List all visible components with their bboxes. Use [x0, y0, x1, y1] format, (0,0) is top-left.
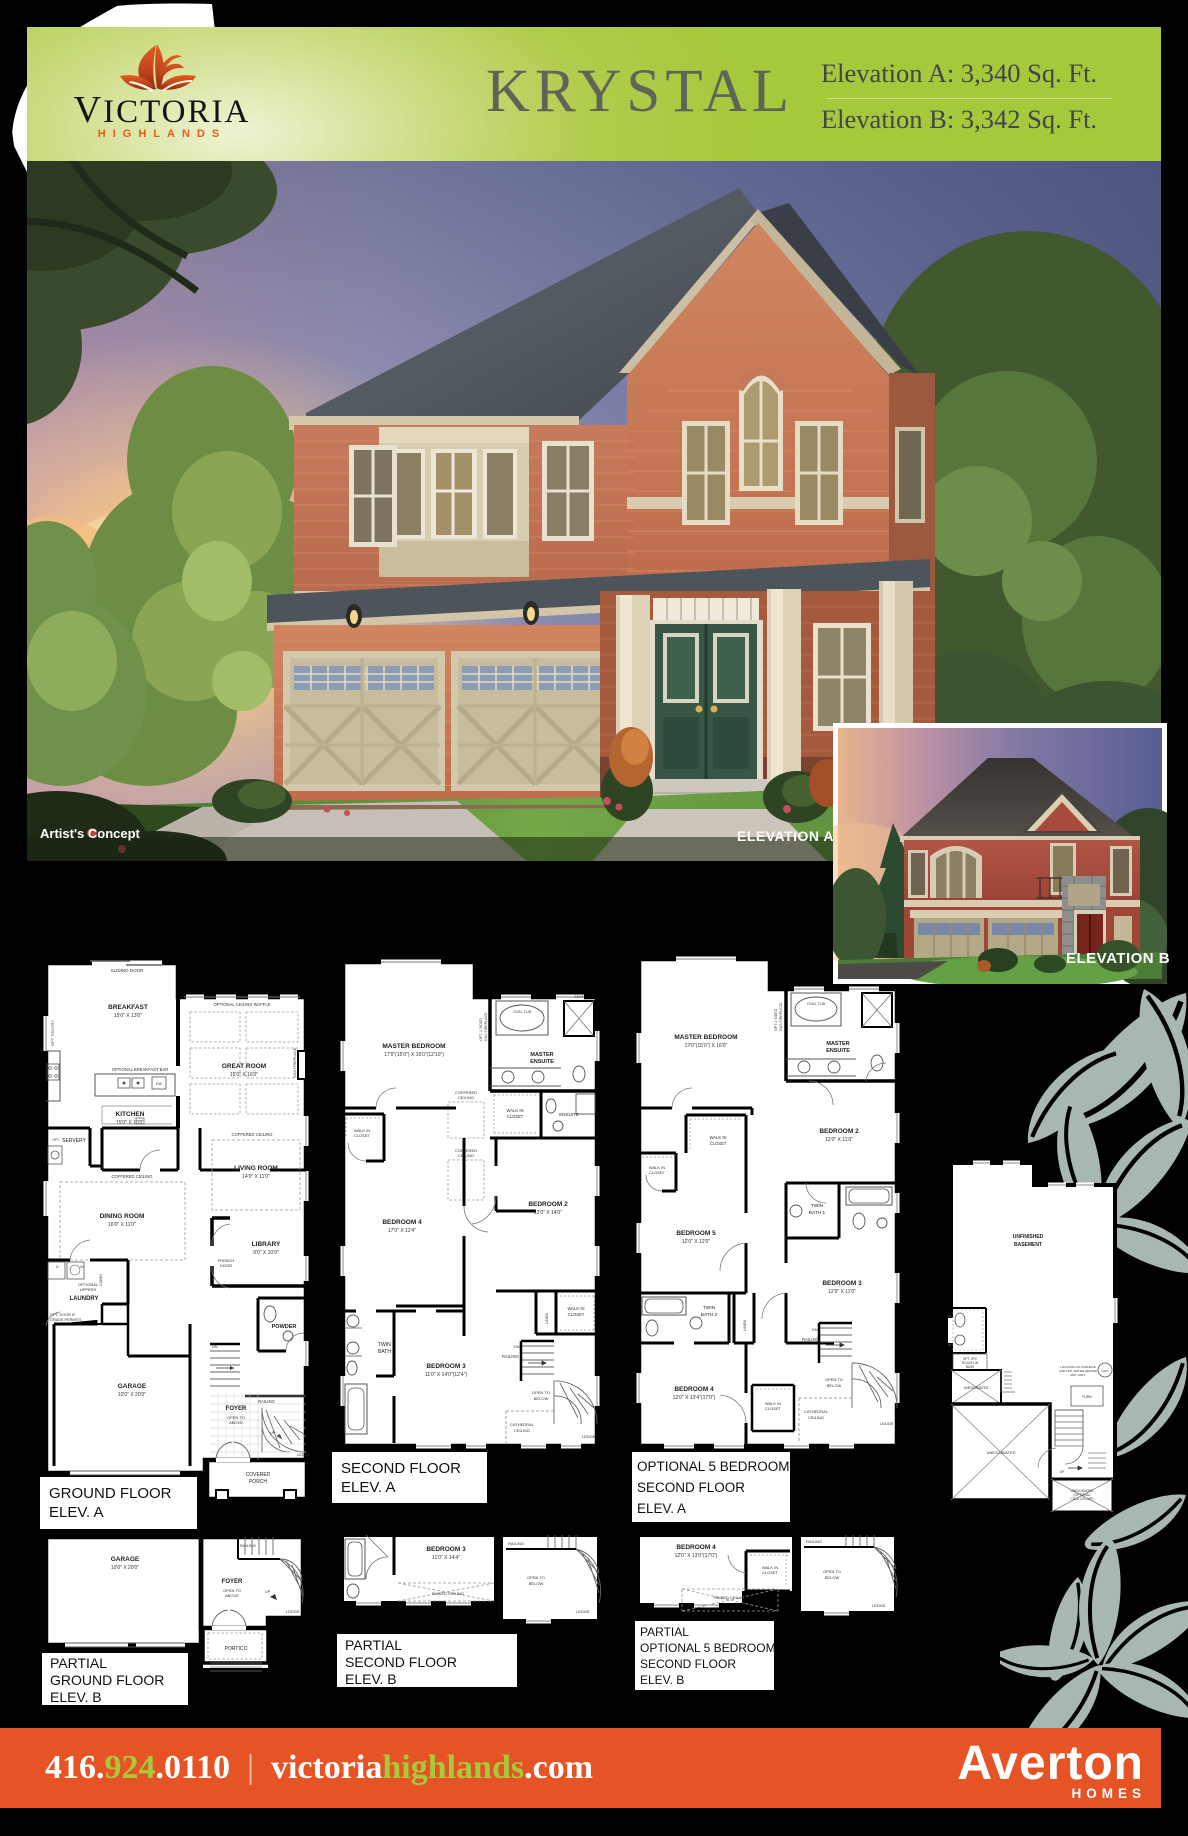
svg-text:SLIDING DOOR: SLIDING DOOR: [111, 968, 145, 973]
svg-text:LEDGE: LEDGE: [582, 1434, 596, 1439]
svg-text:RAISED CEILING: RAISED CEILING: [714, 1595, 746, 1600]
svg-text:OPT. 2 SIDED: OPT. 2 SIDED: [479, 1018, 483, 1041]
svg-text:D: D: [56, 1265, 59, 1269]
svg-text:SERVERY: SERVERY: [62, 1138, 86, 1144]
svg-text:12'0" X 12'0": 12'0" X 12'0": [682, 1239, 710, 1245]
svg-text:12'0" X 11'0": 12'0" X 11'0": [828, 1289, 856, 1295]
svg-text:UP: UP: [265, 1590, 271, 1594]
svg-text:POWDER: POWDER: [272, 1324, 297, 1330]
svg-text:9'0" X 10'0": 9'0" X 10'0": [253, 1250, 279, 1256]
svg-text:CEILING: CEILING: [808, 1415, 824, 1420]
svg-text:17'0"(15'0") X 16'0"(12'10"): 17'0"(15'0") X 16'0"(12'10"): [384, 1052, 444, 1058]
svg-text:10'0" X 20'0": 10'0" X 20'0": [111, 1565, 139, 1571]
svg-text:GARAGE: GARAGE: [118, 1383, 147, 1390]
svg-text:OPTIONAL BREAKFAST BAR: OPTIONAL BREAKFAST BAR: [112, 1067, 169, 1072]
svg-text:DINING ROOM: DINING ROOM: [100, 1213, 145, 1220]
svg-text:MASTER: MASTER: [530, 1052, 553, 1058]
svg-text:11'0" X 14'0"(12'4"): 11'0" X 14'0"(12'4"): [425, 1372, 468, 1378]
svg-text:12'0" X 11'0": 12'0" X 11'0": [825, 1137, 853, 1143]
svg-text:UNFINISHED: UNFINISHED: [1013, 1234, 1044, 1240]
svg-text:OPT 2 SIDED: OPT 2 SIDED: [774, 1008, 778, 1031]
svg-text:MAY VARY: MAY VARY: [1071, 1373, 1086, 1377]
svg-text:CLOSET: CLOSET: [765, 1406, 782, 1411]
svg-text:CLOSET: CLOSET: [762, 1570, 779, 1575]
svg-text:LEDGE: LEDGE: [576, 1609, 590, 1614]
svg-text:ABOVE: ABOVE: [229, 1420, 243, 1425]
svg-text:MASTER BEDROOM: MASTER BEDROOM: [382, 1043, 445, 1050]
svg-text:UP: UP: [270, 1431, 276, 1435]
svg-text:CEILING: CEILING: [458, 1095, 474, 1100]
svg-text:15'0" X 16'0": 15'0" X 16'0": [230, 1072, 258, 1078]
svg-text:MASTER: MASTER: [826, 1041, 849, 1047]
svg-text:ENSUITE: ENSUITE: [530, 1059, 554, 1065]
svg-text:CLOSET: CLOSET: [568, 1312, 585, 1317]
svg-text:LINEN: LINEN: [743, 1320, 747, 1331]
svg-text:BATH 1: BATH 1: [809, 1210, 826, 1216]
svg-text:GARAGE: GARAGE: [111, 1556, 140, 1563]
svg-text:DN: DN: [212, 1345, 218, 1349]
svg-text:OPT. PANTRY: OPT. PANTRY: [50, 1020, 55, 1046]
svg-text:15'0" X 13'0": 15'0" X 13'0": [114, 1013, 142, 1019]
svg-text:OPEN TO: OPEN TO: [825, 1377, 843, 1382]
svg-text:CUBBY: CUBBY: [99, 1273, 103, 1286]
svg-text:LAUNDRY: LAUNDRY: [69, 1296, 98, 1302]
svg-text:OVAL TUB: OVAL TUB: [513, 1010, 532, 1014]
svg-text:SEAT: SEAT: [574, 995, 584, 999]
svg-text:FOYER: FOYER: [222, 1579, 243, 1585]
svg-text:RAILING: RAILING: [240, 1543, 256, 1548]
svg-text:BREAKFAST: BREAKFAST: [108, 1004, 148, 1011]
svg-text:15'0" X 10'0": 15'0" X 10'0": [116, 1120, 144, 1126]
svg-text:DOOR: DOOR: [220, 1263, 232, 1268]
svg-text:COFFERED CEILING: COFFERED CEILING: [232, 1132, 273, 1137]
svg-text:RAILING: RAILING: [258, 1399, 275, 1404]
svg-text:BELOW: BELOW: [827, 1383, 842, 1388]
svg-text:OPT.: OPT.: [52, 1138, 60, 1142]
svg-text:CLOSET: CLOSET: [649, 1170, 666, 1175]
svg-text:BELOW: BELOW: [529, 1581, 544, 1586]
svg-text:ABOVE: ABOVE: [225, 1593, 239, 1598]
svg-text:COLD CELLAR): COLD CELLAR): [1070, 1497, 1093, 1501]
svg-text:LEDGE: LEDGE: [880, 1421, 894, 1426]
svg-text:TWIN: TWIN: [378, 1342, 391, 1348]
svg-text:CLOSET: CLOSET: [354, 1133, 371, 1138]
svg-text:OPEN TO: OPEN TO: [532, 1390, 550, 1395]
svg-text:PORTICO: PORTICO: [225, 1646, 248, 1652]
svg-text:OPEN TO: OPEN TO: [527, 1575, 545, 1580]
svg-text:DN: DN: [812, 1328, 818, 1332]
svg-text:UPPERS: UPPERS: [80, 1287, 97, 1292]
svg-text:LINEN: LINEN: [545, 1313, 549, 1324]
svg-text:TWIN: TWIN: [811, 1203, 824, 1209]
svg-text:FURN: FURN: [1082, 1395, 1092, 1399]
svg-text:CLOSET: CLOSET: [507, 1114, 524, 1119]
svg-text:CEILING: CEILING: [458, 1153, 474, 1158]
svg-text:16'0" X 11'0": 16'0" X 11'0": [108, 1222, 136, 1228]
svg-text:DN: DN: [514, 1345, 520, 1349]
svg-text:UNEXCAVATED: UNEXCAVATED: [964, 1386, 989, 1390]
svg-text:17'0" X 12'4": 17'0" X 12'4": [388, 1228, 416, 1234]
svg-text:RAILING: RAILING: [502, 1354, 519, 1359]
svg-text:DW: DW: [156, 1082, 163, 1086]
svg-text:BEDROOM 3: BEDROOM 3: [822, 1280, 862, 1287]
svg-text:GAS FIREPLACE: GAS FIREPLACE: [293, 1047, 297, 1078]
svg-text:GAS FIREPLACE: GAS FIREPLACE: [484, 1012, 488, 1041]
svg-text:BEDROOM 4: BEDROOM 4: [674, 1386, 714, 1393]
svg-text:12'0" X 14'0": 12'0" X 14'0": [534, 1210, 562, 1216]
svg-text:UNEXCAVATED: UNEXCAVATED: [986, 1450, 1015, 1455]
svg-text:GREAT ROOM: GREAT ROOM: [222, 1063, 266, 1070]
svg-text:BATH: BATH: [378, 1349, 391, 1355]
svg-text:BEDROOM 4: BEDROOM 4: [382, 1219, 422, 1226]
svg-text:BELOW: BELOW: [825, 1575, 840, 1580]
svg-text:RAILING: RAILING: [806, 1539, 822, 1544]
svg-text:TWIN: TWIN: [703, 1305, 716, 1311]
svg-text:BATH 2: BATH 2: [701, 1312, 718, 1318]
svg-text:LIVING ROOM: LIVING ROOM: [234, 1165, 278, 1172]
svg-text:CEILING: CEILING: [514, 1428, 530, 1433]
svg-text:WALK IN: WALK IN: [567, 1306, 584, 1311]
svg-text:CATHEDRAL: CATHEDRAL: [804, 1409, 829, 1414]
svg-text:GAS FIREPLACE: GAS FIREPLACE: [779, 1002, 783, 1031]
svg-text:OPTIONAL CEILING WAFFLE: OPTIONAL CEILING WAFFLE: [214, 1002, 271, 1007]
svg-text:LIBRARY: LIBRARY: [252, 1241, 281, 1248]
svg-text:CLOSET: CLOSET: [710, 1141, 727, 1146]
svg-text:LEDGE: LEDGE: [872, 1603, 886, 1608]
svg-text:WALK IN: WALK IN: [506, 1108, 523, 1113]
svg-text:17'0"(15'0") X 16'0": 17'0"(15'0") X 16'0": [685, 1043, 728, 1049]
svg-text:KITCHEN: KITCHEN: [116, 1111, 145, 1118]
svg-text:UP: UP: [1060, 1470, 1064, 1474]
svg-text:WALK IN: WALK IN: [709, 1135, 726, 1140]
svg-text:BELOW: BELOW: [534, 1396, 549, 1401]
svg-text:BEDROOM 3: BEDROOM 3: [426, 1546, 466, 1553]
svg-text:BEDROOM 3: BEDROOM 3: [426, 1363, 466, 1370]
svg-text:ENSUITE: ENSUITE: [826, 1048, 850, 1054]
svg-text:CATHEDRAL: CATHEDRAL: [510, 1422, 535, 1427]
svg-text:BEDROOM 4: BEDROOM 4: [676, 1544, 716, 1551]
svg-text:12'0" X 13'0"(17'0"): 12'0" X 13'0"(17'0"): [675, 1553, 718, 1559]
svg-text:PORCH: PORCH: [249, 1479, 267, 1485]
svg-text:GRADE PERMITS: GRADE PERMITS: [50, 1318, 82, 1322]
svg-text:RAISED CEILING: RAISED CEILING: [432, 1591, 464, 1596]
svg-text:11'0" X 14'4": 11'0" X 14'4": [432, 1555, 460, 1561]
svg-text:BASE: BASE: [966, 1365, 975, 1369]
svg-text:FOYER: FOYER: [226, 1406, 247, 1412]
svg-text:BEDROOM 2: BEDROOM 2: [528, 1201, 568, 1208]
svg-text:LEDGE: LEDGE: [297, 1452, 310, 1457]
svg-text:LEDGE: LEDGE: [286, 1609, 300, 1614]
svg-text:12'0" X 13'4"(17'0"): 12'0" X 13'4"(17'0"): [673, 1395, 716, 1401]
svg-text:BEDROOM 5: BEDROOM 5: [676, 1230, 716, 1237]
svg-text:14'0" X 11'0": 14'0" X 11'0": [242, 1174, 270, 1180]
svg-text:BASEMENT: BASEMENT: [1014, 1242, 1042, 1248]
svg-text:10'0" X 20'0": 10'0" X 20'0": [118, 1392, 146, 1398]
svg-text:HWT: HWT: [1102, 1369, 1109, 1373]
svg-text:OVAL TUB: OVAL TUB: [807, 1002, 826, 1006]
svg-text:MASTER BEDROOM: MASTER BEDROOM: [674, 1034, 737, 1041]
svg-text:RAILING: RAILING: [508, 1541, 524, 1546]
svg-text:RAILING: RAILING: [802, 1337, 819, 1342]
svg-text:COFFERED CEILING: COFFERED CEILING: [112, 1174, 153, 1179]
svg-text:COVERED: COVERED: [246, 1472, 271, 1478]
svg-text:BEDROOM 2: BEDROOM 2: [819, 1128, 859, 1135]
svg-text:W: W: [80, 1265, 84, 1269]
svg-text:OPEN TO: OPEN TO: [823, 1569, 841, 1574]
